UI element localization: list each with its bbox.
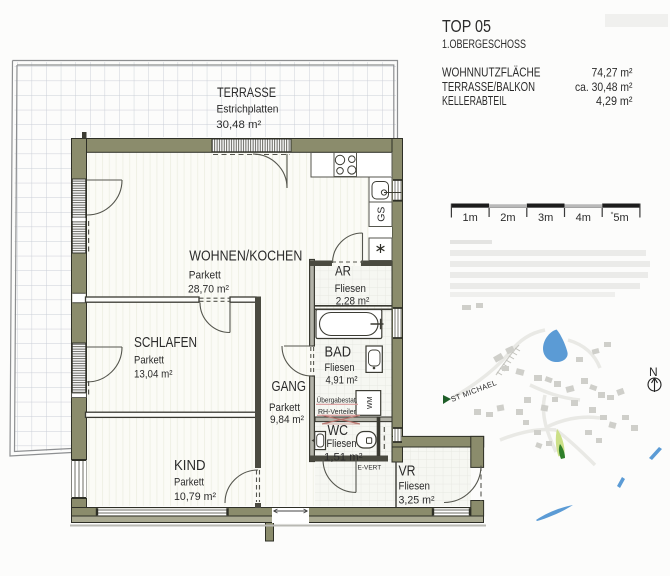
svg-text:Übergabestat.: Übergabestat. (317, 396, 358, 405)
svg-text:KELLERABTEIL: KELLERABTEIL (442, 94, 507, 108)
svg-text:ca. 30,48 m²: ca. 30,48 m² (575, 80, 633, 94)
svg-text:5m: 5m (613, 212, 628, 224)
svg-text:Estrichplatten: Estrichplatten (217, 104, 279, 116)
svg-text:GANG: GANG (272, 378, 307, 395)
svg-text:Fliesen: Fliesen (335, 283, 366, 295)
svg-text:VR: VR (399, 464, 416, 480)
svg-text:Fliesen: Fliesen (327, 438, 357, 450)
svg-text:9,84 m²: 9,84 m² (270, 414, 304, 426)
svg-text:KIND: KIND (174, 457, 206, 474)
svg-text:4,29 m²: 4,29 m² (596, 94, 633, 108)
svg-text:3m: 3m (538, 212, 553, 224)
svg-text:WM: WM (367, 396, 374, 409)
svg-text:E-VERT: E-VERT (358, 465, 382, 472)
svg-text:10,79 m²: 10,79 m² (174, 491, 216, 503)
svg-text:Fliesen: Fliesen (325, 362, 355, 374)
svg-text:TOP 05: TOP 05 (442, 16, 491, 36)
svg-text:1m: 1m (463, 212, 478, 224)
svg-text:Parkett: Parkett (174, 477, 204, 489)
svg-text:BAD: BAD (325, 344, 352, 361)
svg-text:AR: AR (335, 264, 351, 279)
svg-text:1,51 m²: 1,51 m² (324, 452, 363, 464)
svg-text:2,28 m²: 2,28 m² (336, 296, 370, 308)
svg-text:Parkett: Parkett (269, 402, 300, 414)
svg-text:Parkett: Parkett (189, 269, 221, 281)
svg-text:N: N (649, 365, 658, 379)
svg-text:SCHLAFEN: SCHLAFEN (134, 334, 197, 351)
svg-text:74,27 m²: 74,27 m² (592, 66, 633, 80)
svg-text:2m: 2m (500, 212, 515, 224)
svg-text:RH-Verteiler: RH-Verteiler (318, 407, 356, 416)
svg-text:4m: 4m (576, 212, 591, 224)
svg-text:1.OBERGESCHOSS: 1.OBERGESCHOSS (442, 37, 526, 51)
svg-text:WOHNEN/KOCHEN: WOHNEN/KOCHEN (189, 248, 302, 264)
svg-text:WOHNNUTZFLÄCHE: WOHNNUTZFLÄCHE (442, 66, 541, 80)
svg-text:30,48 m²: 30,48 m² (216, 119, 261, 131)
svg-text:Parkett: Parkett (134, 355, 164, 367)
svg-text:13,04 m²: 13,04 m² (134, 369, 173, 381)
svg-text:4,91 m²: 4,91 m² (326, 375, 358, 387)
svg-text:TERRASSE/BALKON: TERRASSE/BALKON (442, 80, 535, 94)
svg-text:3,25 m²: 3,25 m² (399, 495, 435, 507)
svg-text:Fliesen: Fliesen (399, 481, 431, 493)
svg-text:ST MICHAEL: ST MICHAEL (449, 378, 497, 404)
svg-text:WC: WC (328, 422, 349, 439)
svg-text:28,70 m²: 28,70 m² (188, 283, 229, 295)
svg-text:GS: GS (375, 207, 387, 222)
svg-text:TERRASSE: TERRASSE (217, 85, 276, 100)
